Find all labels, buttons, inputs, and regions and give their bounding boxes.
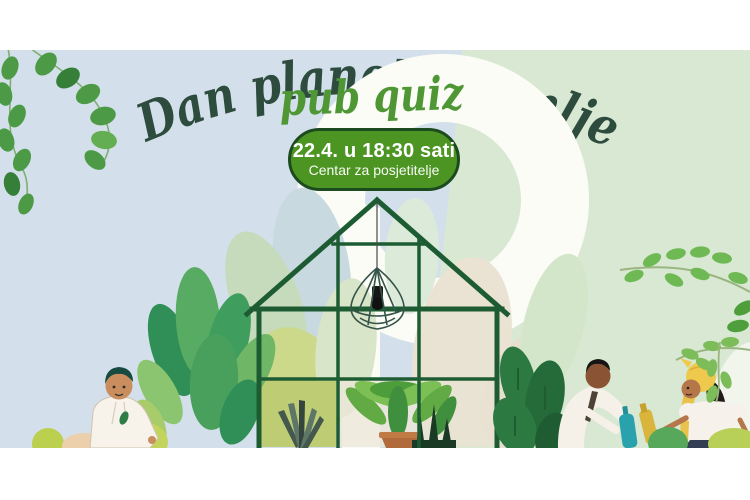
- letterbox-bottom: [0, 448, 750, 500]
- screenshot-root: { "poster": { "title": "Dan planeta Zeml…: [0, 0, 750, 500]
- badge-date-time: 22.4. u 18:30 sati: [293, 141, 456, 162]
- badge-location: Centar za posjetitelje: [309, 163, 440, 178]
- event-subtitle: pub quiz: [279, 66, 465, 126]
- poster-illustration: Dan planeta Zemlje pub quiz: [0, 50, 750, 448]
- letterbox-top: [0, 0, 750, 50]
- event-poster: Dan planeta Zemlje pub quiz: [0, 50, 750, 448]
- event-badge: 22.4. u 18:30 sati Centar za posjetitelj…: [288, 128, 460, 191]
